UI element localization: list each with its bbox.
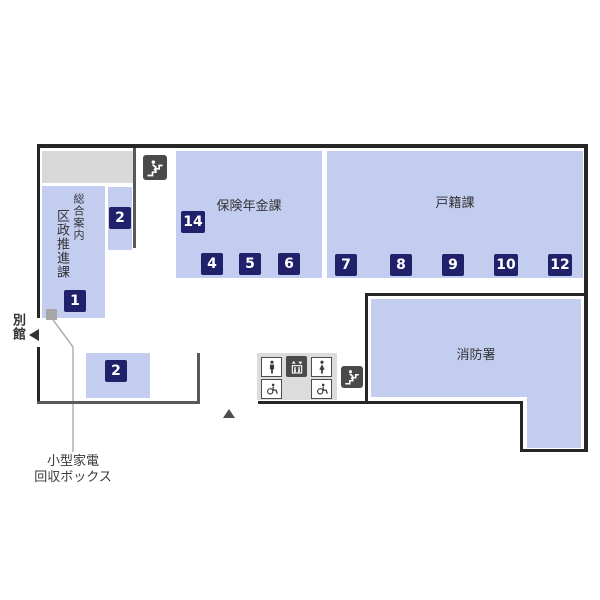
counter-badge-10: 10: [494, 254, 518, 276]
floor-map: 総合案内 区政推進課 保険年金課 戸籍課 消防署 1 2 2 14 4 5 6 …: [0, 0, 600, 600]
counter-badge-14: 14: [181, 211, 205, 233]
female-restroom-icon: [311, 357, 332, 377]
wall-top: [37, 144, 588, 148]
stairs-icon: [143, 155, 167, 180]
counter-badge-7: 7: [335, 254, 357, 276]
collection-box-label-line1: 小型家電: [17, 454, 129, 470]
counter-badge-2-lower: 2: [105, 360, 127, 382]
collection-box-label-line2: 回収ボックス: [17, 470, 129, 486]
male-restroom-icon: [261, 357, 282, 377]
counter-badge-9: 9: [442, 254, 464, 276]
fire-station-wall-notch: [520, 404, 523, 452]
counter-block: [42, 151, 133, 183]
fire-station-wall-top: [365, 293, 588, 296]
room-label-sogo-annai: 総合案内: [73, 193, 84, 241]
room-label-fire-station: 消防署: [371, 344, 581, 363]
room-label-kusei-suishin: 区政推進課: [55, 209, 68, 279]
stairs-icon: [341, 366, 363, 388]
fire-station-wall-bottom: [520, 449, 588, 452]
room-fire-station-leg: [527, 397, 581, 448]
restroom-block: [257, 353, 337, 400]
collection-box-label: 小型家電 回収ボックス: [17, 454, 129, 485]
partition-vertical-bottom: [197, 353, 200, 401]
counter-badge-1: 1: [64, 290, 86, 312]
counter-badge-8: 8: [390, 254, 412, 276]
accessible-restroom-icon: [311, 379, 332, 399]
fire-station-wall-left: [365, 296, 368, 401]
left-arrow-icon: [29, 329, 39, 341]
counter-badge-6: 6: [278, 253, 300, 275]
partition-vertical-left: [133, 148, 136, 248]
counter-badge-5: 5: [239, 253, 261, 275]
entrance-triangle-icon: [223, 409, 235, 418]
counter-badge-4: 4: [201, 253, 223, 275]
counter-badge-2-upper: 2: [109, 207, 131, 229]
wall-right: [584, 144, 588, 452]
annex-label: 別館: [11, 313, 24, 341]
collection-box-marker: [46, 309, 57, 320]
wall-bottom-left: [37, 401, 200, 404]
elevator-icon: [286, 356, 307, 377]
counter-badge-12: 12: [548, 254, 572, 276]
wall-left-lower: [37, 347, 40, 404]
wall-bottom-right: [258, 401, 523, 404]
accessible-restroom-icon: [261, 379, 282, 399]
room-label-koseki: 戸籍課: [327, 192, 583, 211]
wall-left-upper: [37, 144, 40, 318]
